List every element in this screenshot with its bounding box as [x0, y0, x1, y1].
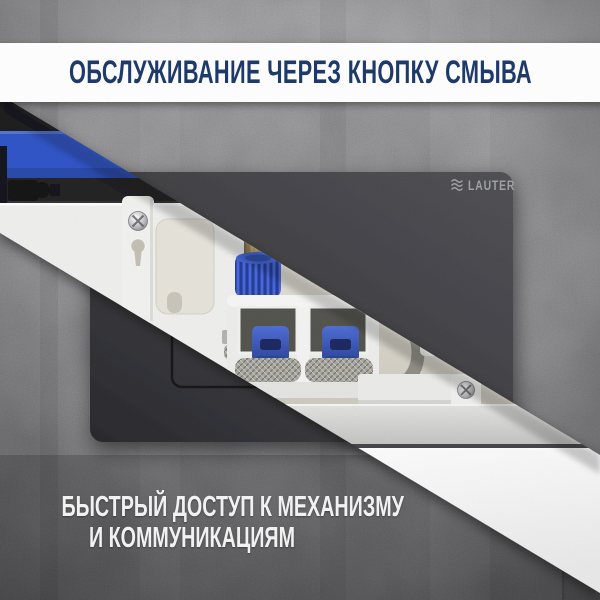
- title-banner: [0, 43, 600, 102]
- promo-image: LAUTER: [0, 0, 600, 600]
- scene: LAUTER: [0, 0, 600, 600]
